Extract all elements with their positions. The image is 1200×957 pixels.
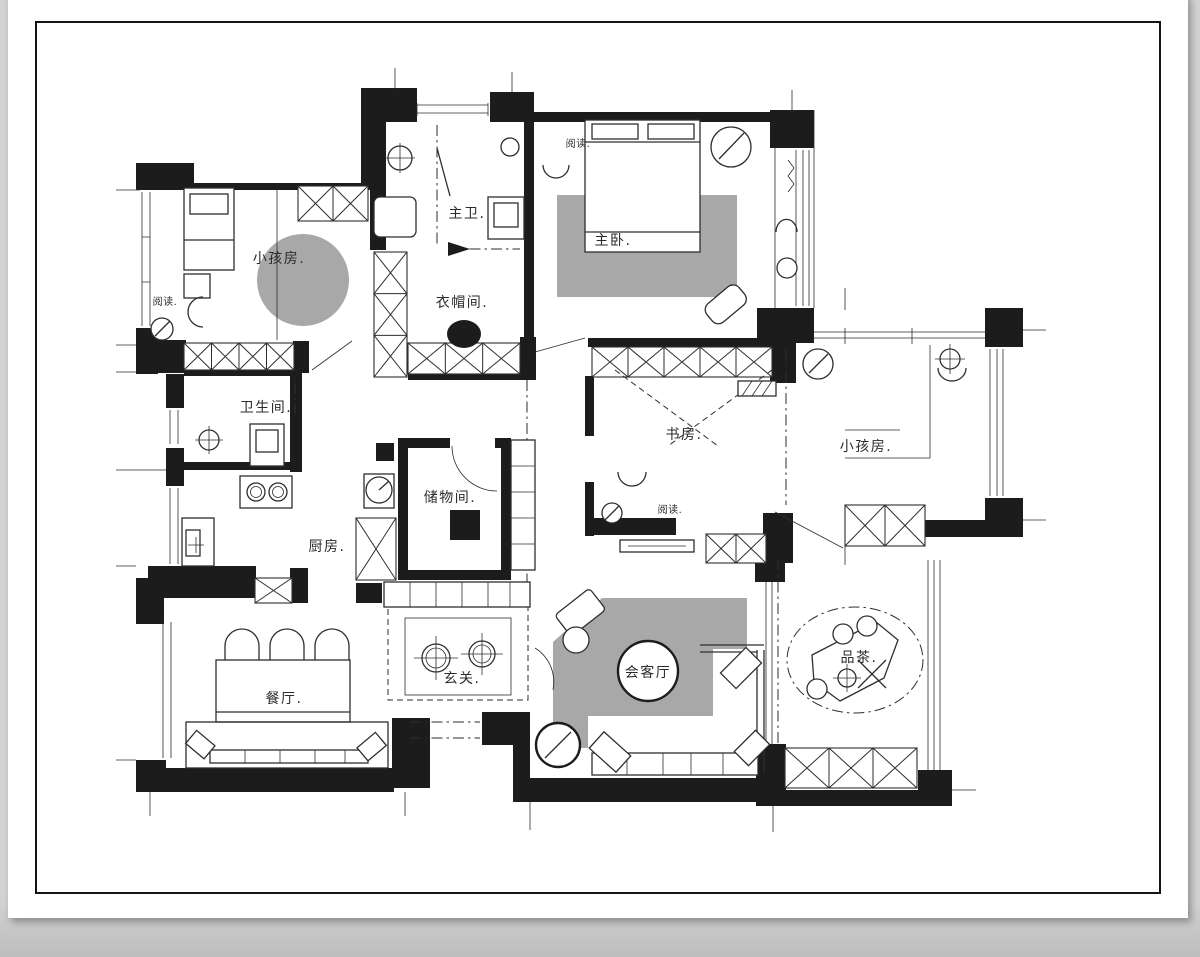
room-label-kids-room-1: 小孩房. [253,251,305,267]
room-label-study: 书房. [666,427,703,443]
room-label-master-bath: 主卫. [449,206,486,222]
room-label-storage: 储物间. [424,490,476,506]
room-label-kitchen: 厨房. [309,539,346,555]
room-label-living: 会客厅 [625,664,672,681]
room-label-bathroom: 卫生间. [240,400,292,416]
room-label-walk-in-closet: 衣帽间. [436,295,488,311]
storage-shelf-column [511,440,535,570]
kids-room-1-round-rug [257,234,349,326]
closet-pouf [447,320,481,348]
hall-shelf-band [384,582,530,607]
room-label-master-bedroom: 主卧. [595,233,632,249]
room-label-dining: 餐厅. [266,691,303,707]
room-label-kids-room-2: 小孩房. [840,439,892,455]
room-label-foyer: 玄关. [444,670,481,687]
annotation-reading-study: 阅读. [658,503,683,516]
annotation-reading-kids-room-1: 阅读. [153,295,178,308]
annotation-reading-master-bedroom: 阅读. [566,137,591,150]
floor-plan-canvas: 小孩房. 主卫. 主卧. 衣帽间. 卫生间. 书房. 小孩房. 储物间. 厨房.… [0,0,1200,957]
room-label-tea: 品茶. [841,650,878,666]
